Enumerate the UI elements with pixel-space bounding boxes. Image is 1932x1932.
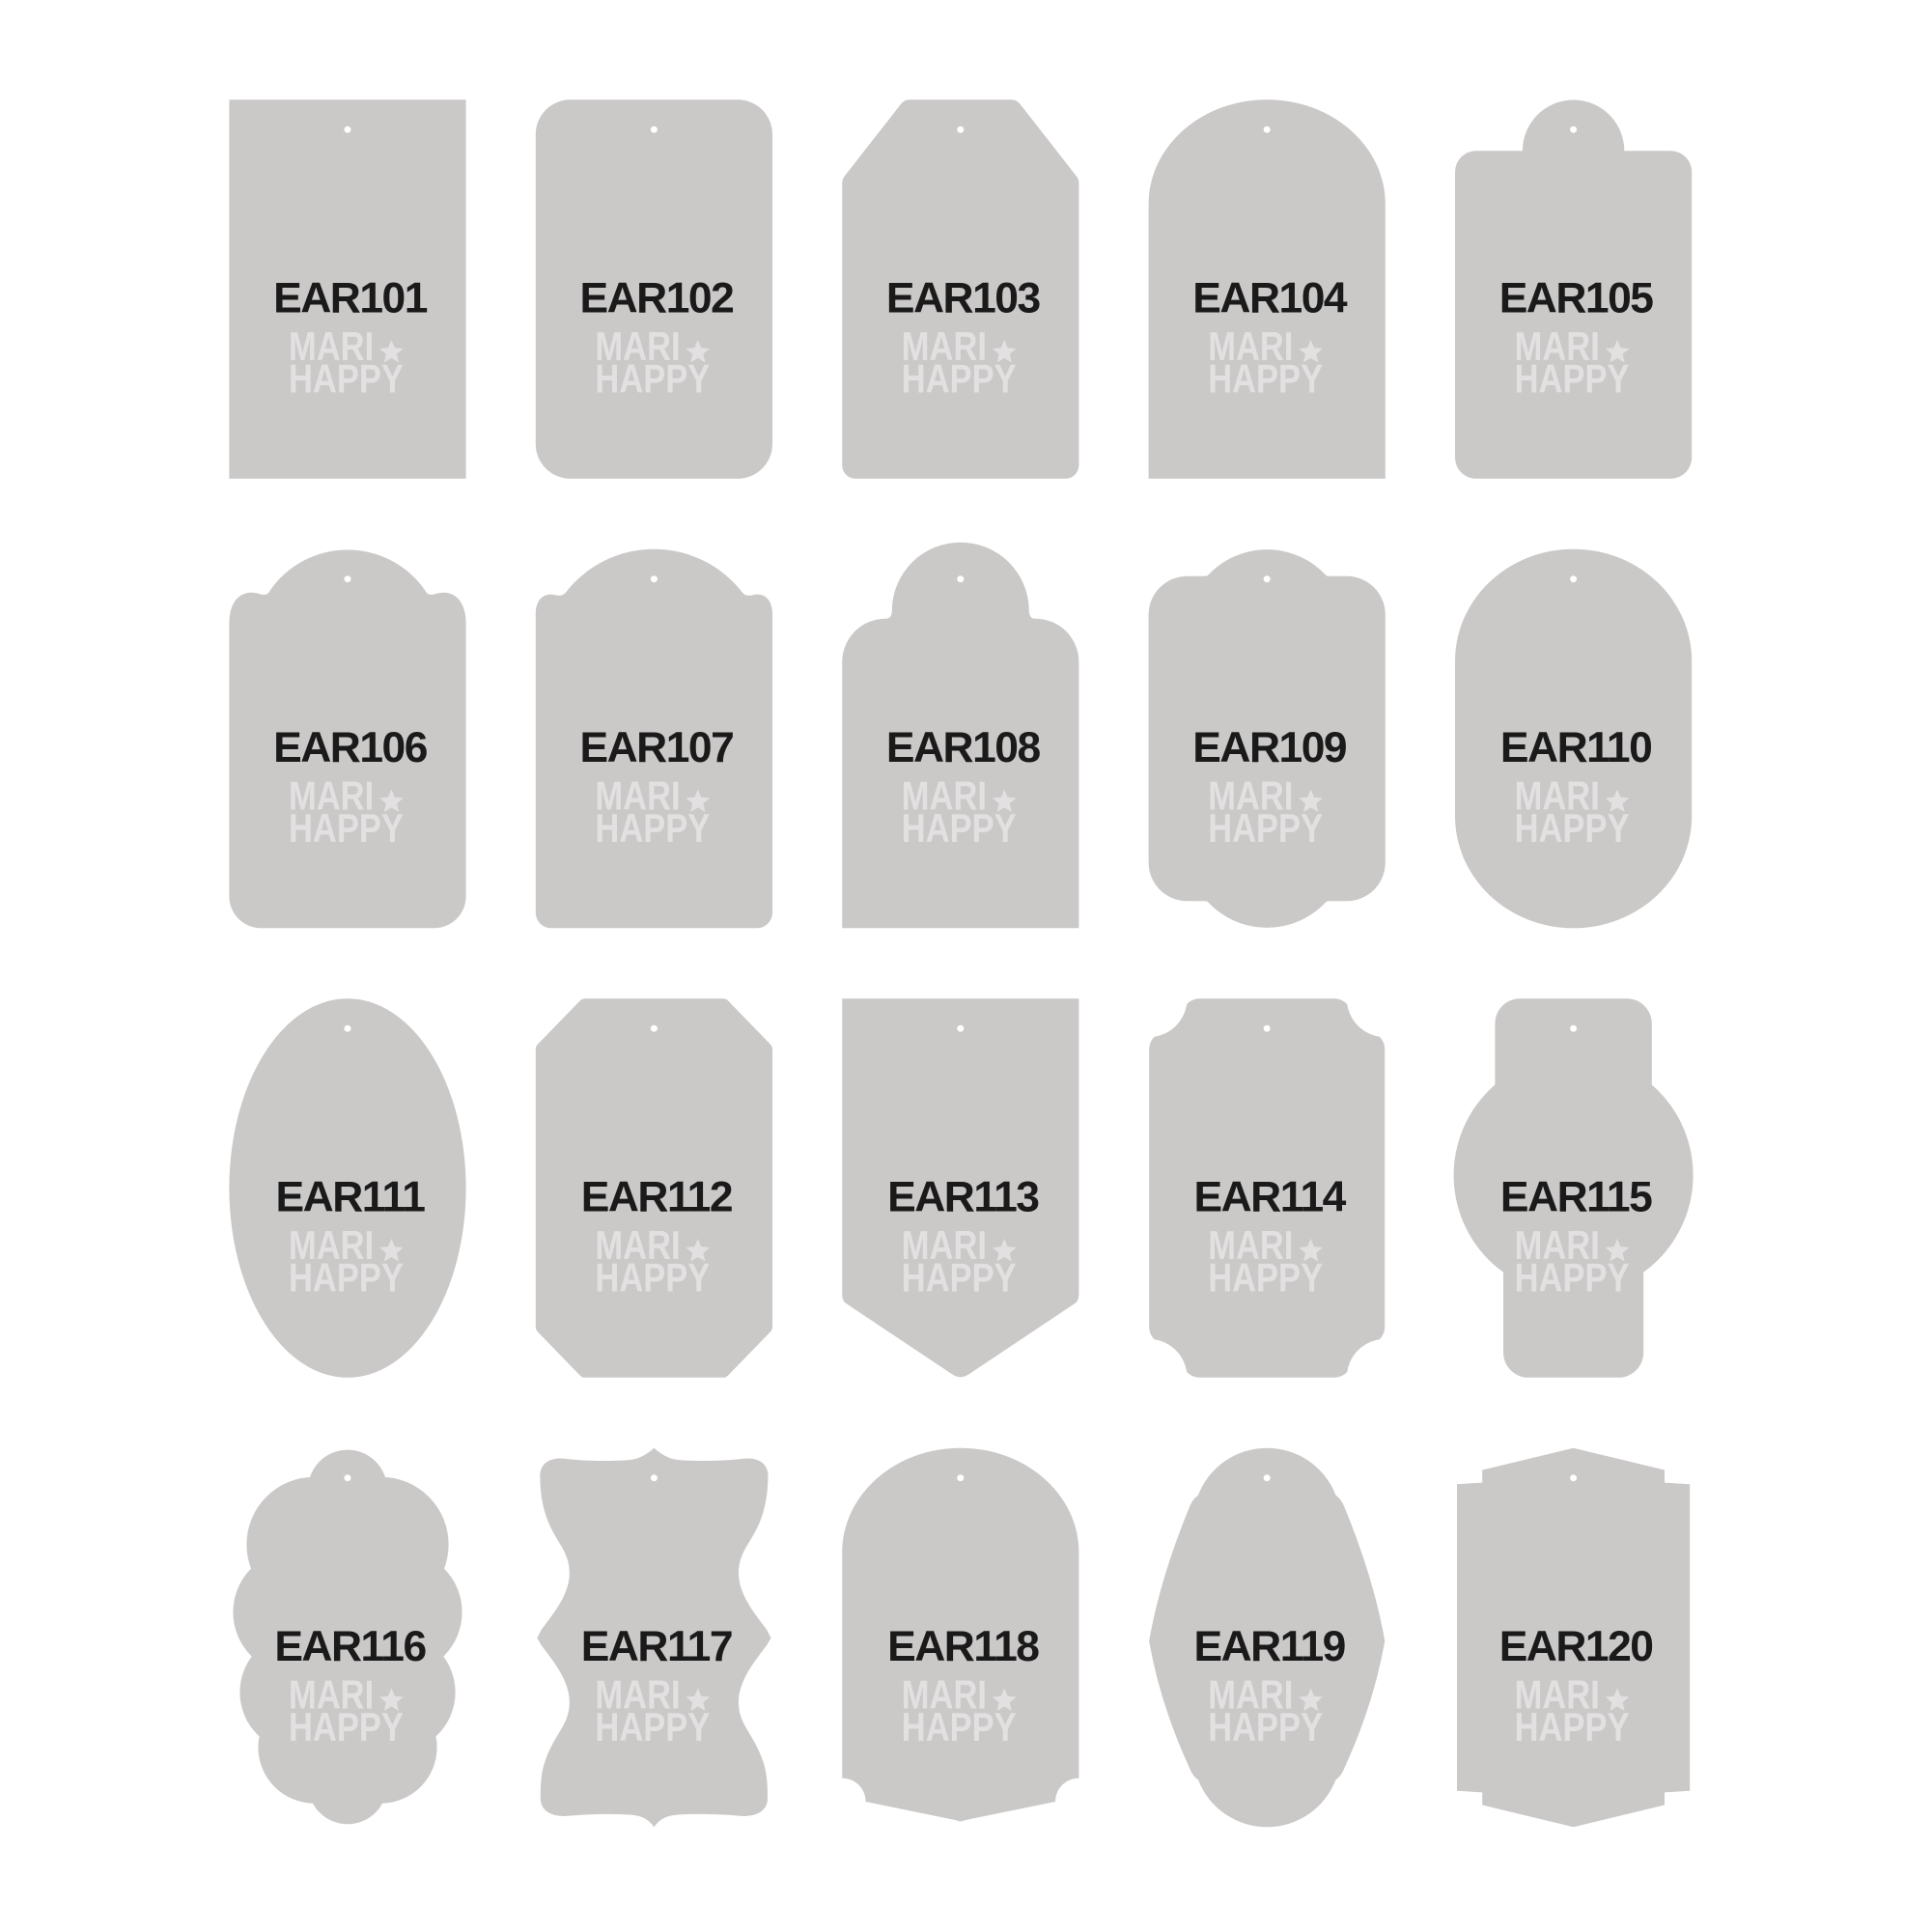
svg-text:HAPPY: HAPPY [595,1705,710,1750]
svg-text:HAPPY: HAPPY [1208,806,1323,852]
svg-text:EAR120: EAR120 [1499,1623,1653,1670]
svg-text:HAPPY: HAPPY [1515,357,1630,403]
svg-text:EAR106: EAR106 [273,724,428,771]
svg-text:HAPPY: HAPPY [289,1705,404,1750]
svg-text:HAPPY: HAPPY [289,806,404,852]
svg-text:HAPPY: HAPPY [595,357,710,403]
svg-text:EAR114: EAR114 [1194,1174,1347,1221]
svg-text:EAR105: EAR105 [1499,275,1654,322]
svg-text:HAPPY: HAPPY [902,1705,1017,1750]
svg-text:EAR117: EAR117 [581,1623,732,1670]
svg-text:HAPPY: HAPPY [902,806,1017,852]
svg-text:EAR107: EAR107 [580,724,734,771]
svg-text:EAR103: EAR103 [886,275,1041,322]
svg-text:EAR116: EAR116 [274,1623,426,1670]
svg-text:HAPPY: HAPPY [1515,806,1630,852]
svg-text:EAR102: EAR102 [580,275,734,322]
svg-text:EAR113: EAR113 [887,1174,1039,1221]
svg-text:HAPPY: HAPPY [1208,357,1323,403]
svg-text:EAR101: EAR101 [273,275,428,322]
svg-text:EAR115: EAR115 [1500,1174,1652,1221]
svg-text:HAPPY: HAPPY [902,357,1017,403]
svg-text:HAPPY: HAPPY [1208,1705,1323,1750]
svg-text:EAR118: EAR118 [887,1623,1039,1670]
svg-text:HAPPY: HAPPY [1208,1256,1323,1302]
svg-text:HAPPY: HAPPY [289,357,404,403]
svg-text:HAPPY: HAPPY [595,806,710,852]
svg-text:EAR119: EAR119 [1194,1623,1346,1670]
svg-text:HAPPY: HAPPY [289,1256,404,1302]
svg-text:HAPPY: HAPPY [1515,1705,1630,1750]
svg-text:EAR111: EAR111 [276,1174,426,1221]
svg-text:EAR104: EAR104 [1192,275,1348,322]
svg-text:HAPPY: HAPPY [1515,1256,1630,1302]
svg-text:HAPPY: HAPPY [902,1256,1017,1302]
svg-text:HAPPY: HAPPY [595,1256,710,1302]
svg-text:EAR110: EAR110 [1500,724,1651,771]
svg-text:EAR112: EAR112 [581,1174,732,1221]
svg-text:EAR109: EAR109 [1192,724,1347,771]
svg-text:EAR108: EAR108 [886,724,1041,771]
